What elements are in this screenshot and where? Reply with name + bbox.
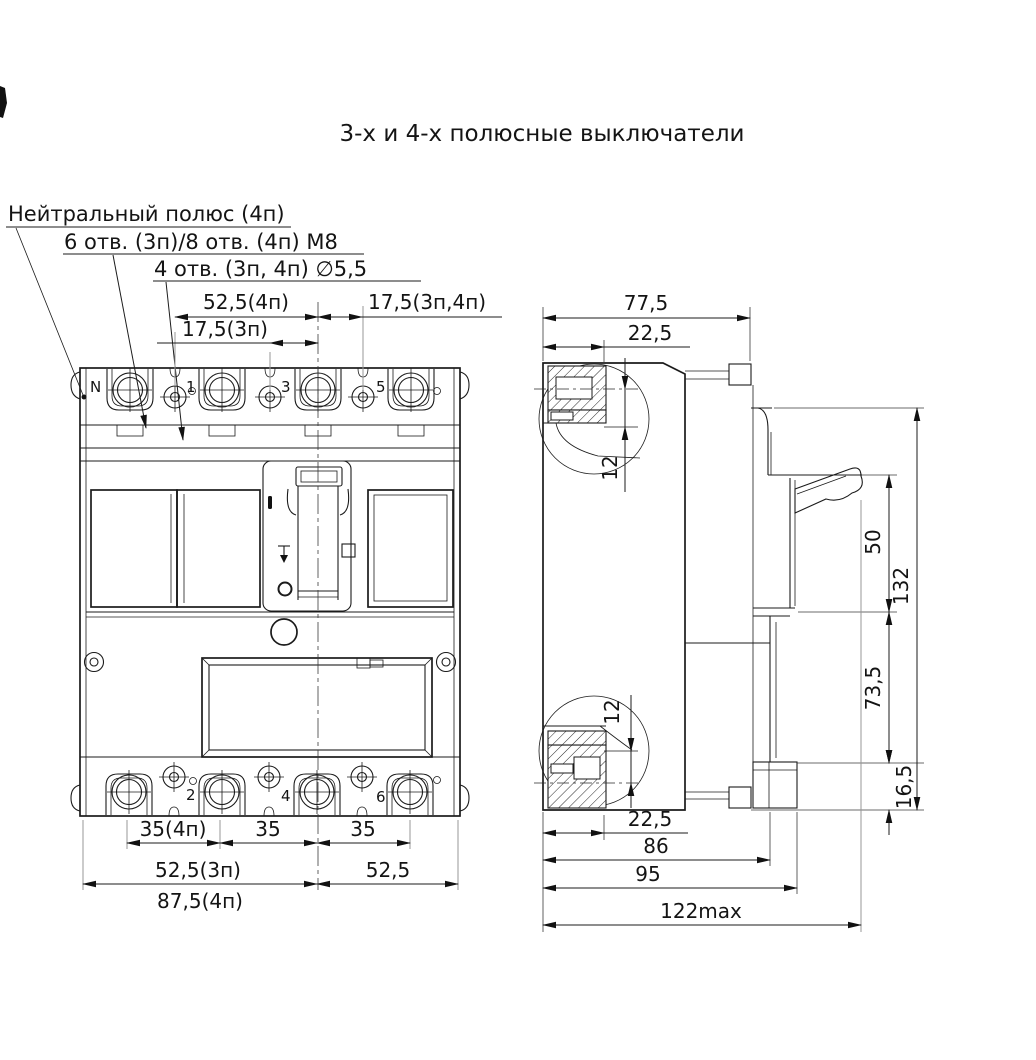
trip-symbol (278, 546, 290, 563)
breaker-dimension-drawing: 3-х и 4-х полюсные выключатели Нейтральн… (0, 0, 1036, 1060)
face-windows (91, 490, 453, 607)
front-view-drawing: N 1 3 5 (71, 290, 502, 913)
pole-label-n: N (90, 378, 101, 396)
handle-clip (296, 467, 342, 486)
dim-95: 95 (635, 862, 660, 886)
callout-neutral-pole: Нейтральный полюс (4п) (8, 202, 285, 226)
side-view-drawing: 77,5 22,5 12 12 50 73,5 (534, 291, 924, 932)
dim-77-5: 77,5 (624, 291, 669, 315)
page-title: 3-х и 4-х полюсные выключатели (340, 121, 745, 147)
dim-132: 132 (889, 567, 913, 605)
edge-artifact (0, 86, 7, 118)
dim-17-5-3p: 17,5(3п) (182, 317, 268, 341)
dim-12-bottom: 12 (600, 699, 624, 724)
pole-label-3: 3 (281, 378, 291, 396)
drawing-svg: 3-х и 4-х полюсные выключатели Нейтральн… (0, 0, 1036, 1060)
test-button (271, 619, 297, 645)
callout-diameter-holes: 4 отв. (3п, 4п) ∅5,5 (154, 257, 367, 281)
dim-73-5: 73,5 (861, 666, 885, 711)
dim-52-5-4p: 52,5(4п) (203, 290, 289, 314)
dim-52-5-3p: 52,5(3п) (155, 858, 241, 882)
dim-35-a: 35 (255, 817, 280, 841)
left-screw-hole (85, 653, 104, 672)
on-symbol (268, 496, 272, 509)
bottom-terminal-section (534, 696, 649, 808)
label-plate (202, 658, 432, 757)
indicator-window (342, 544, 355, 557)
pole-label-6: 6 (376, 788, 386, 806)
pole-label-4: 4 (281, 787, 291, 805)
dim-22-5-top: 22,5 (628, 321, 673, 345)
pole-label-1: 1 (186, 378, 196, 396)
handle-control-zone (263, 461, 355, 645)
dim-16-5: 16,5 (892, 765, 916, 810)
callout-m8-holes: 6 отв. (3п)/8 отв. (4п) М8 (64, 230, 338, 254)
top-terminal-section (534, 364, 649, 474)
dim-17-5-3p-4p: 17,5(3п,4п) (368, 290, 486, 314)
dim-35-4p: 35(4п) (140, 817, 207, 841)
dim-22-5-bottom: 22,5 (628, 807, 673, 831)
dim-35-b: 35 (350, 817, 375, 841)
dim-12-top: 12 (598, 455, 622, 480)
dim-50: 50 (861, 529, 885, 554)
dim-86: 86 (643, 834, 668, 858)
dim-52-5: 52,5 (366, 858, 411, 882)
dim-122max: 122max (660, 899, 742, 923)
right-screw-hole (437, 653, 456, 672)
din-rail-block (753, 762, 797, 808)
pole-label-2: 2 (186, 786, 196, 804)
pole-label-5: 5 (376, 378, 386, 396)
dim-87-5-4p: 87,5(4п) (157, 889, 243, 913)
off-symbol (279, 583, 292, 596)
cover-profile (751, 408, 862, 808)
